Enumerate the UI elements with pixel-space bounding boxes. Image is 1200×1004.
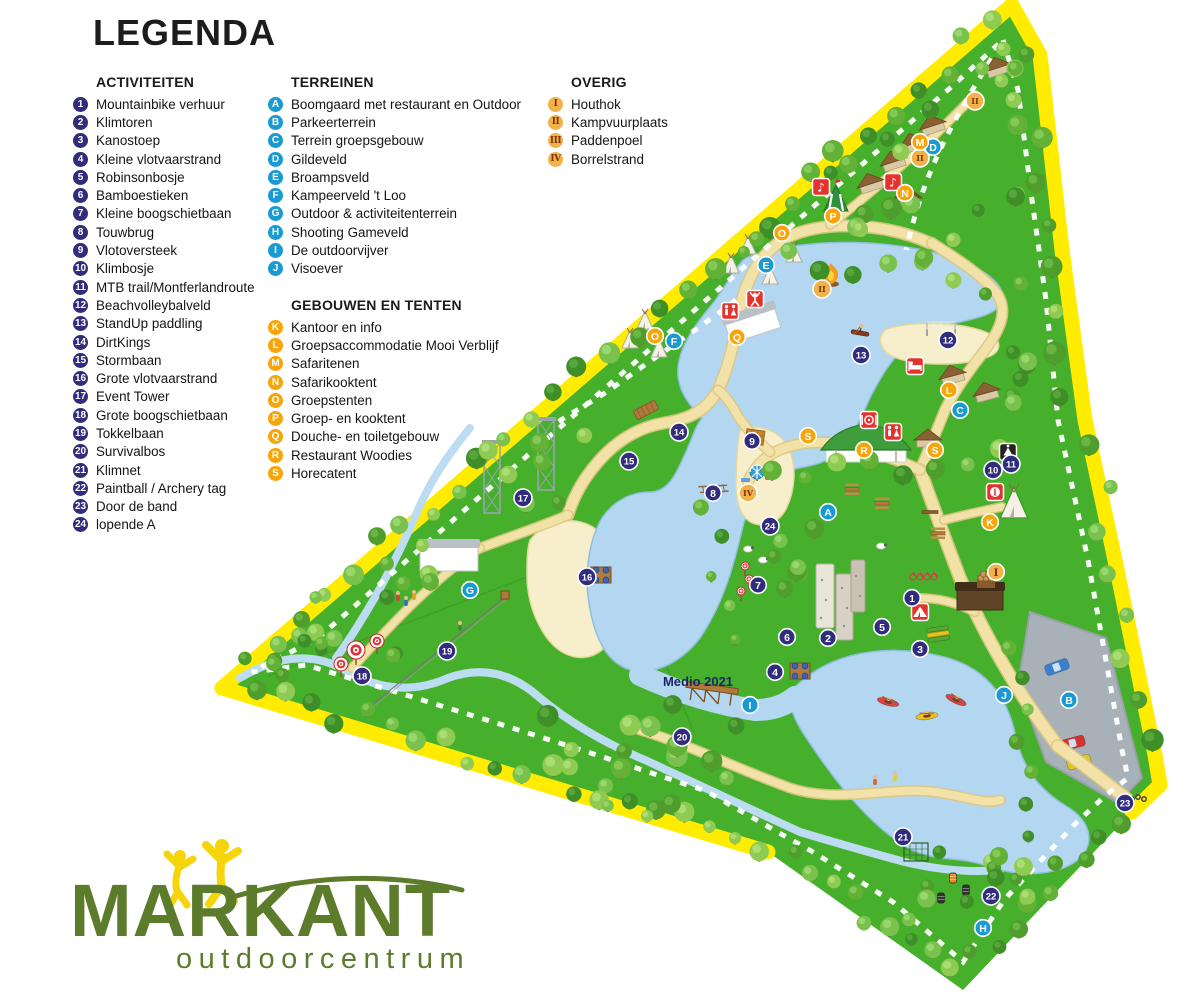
prop-person <box>458 621 462 631</box>
legend-item-overig-II: IIKampvuurplaats <box>548 113 668 131</box>
legend-item-gebouwen-Q: QDouche- en toiletgebouw <box>268 428 499 446</box>
map-marker-3: 3 <box>912 641 929 658</box>
legend-badge: 8 <box>73 225 88 240</box>
legend-badge: IV <box>548 152 563 167</box>
map-marker-P: P <box>825 208 842 225</box>
legend-item-label: Survivalbos <box>96 444 165 459</box>
legend-section-header: OVERIG <box>571 71 668 93</box>
svg-text:13: 13 <box>856 350 867 361</box>
svg-text:9: 9 <box>749 436 755 448</box>
legend-item-activiteiten-13: 13StandUp paddling <box>73 315 255 333</box>
map-marker-7: 7 <box>750 577 767 594</box>
legend-item-label: Kampeerveld 't Loo <box>291 188 406 203</box>
legend-badge: 23 <box>73 499 88 514</box>
legend-item-gebouwen-M: MSafaritenen <box>268 355 499 373</box>
legend-badge: 5 <box>73 170 88 185</box>
legend-section-terreinen: TERREINENABoomgaard met restaurant en Ou… <box>268 71 521 278</box>
map-marker-19: 19 <box>438 642 456 660</box>
tree <box>1006 345 1020 359</box>
legend-item-activiteiten-3: 3Kanostoep <box>73 132 255 150</box>
legend-badge: 20 <box>73 444 88 459</box>
map-marker-I: I <box>988 564 1005 581</box>
map-marker-4: 4 <box>767 664 784 681</box>
legend-badge: 19 <box>73 426 88 441</box>
logo-subtitle: outdoorcentrum <box>176 943 470 975</box>
legend-item-label: Grote vlotvaarstrand <box>96 371 217 386</box>
legend-item-activiteiten-24: 24lopende A <box>73 516 255 534</box>
legend-badge: 4 <box>73 152 88 167</box>
svg-text:O: O <box>651 331 659 343</box>
svg-text:19: 19 <box>442 646 453 657</box>
legend-badge: 14 <box>73 335 88 350</box>
legend-badge: 15 <box>73 353 88 368</box>
legend-badge: L <box>268 338 283 353</box>
tree <box>396 576 410 591</box>
tree <box>416 539 429 552</box>
legend-item-gebouwen-S: SHorecatent <box>268 464 499 482</box>
svg-text:17: 17 <box>518 493 529 504</box>
svg-text:Q: Q <box>733 332 741 344</box>
legend-item-activiteiten-6: 6Bamboestieken <box>73 186 255 204</box>
tree <box>933 845 947 859</box>
sign-bed-icon <box>907 358 924 375</box>
svg-text:22: 22 <box>986 891 997 902</box>
svg-text:L: L <box>946 385 953 397</box>
svg-text:S: S <box>931 445 938 457</box>
legend-item-label: Klimtoren <box>96 115 153 130</box>
tree <box>275 668 289 682</box>
legend-item-label: Vlotoversteek <box>96 243 177 258</box>
legend-item-label: Boomgaard met restaurant en Outdoor <box>291 97 521 112</box>
legend-item-label: Broampsveld <box>291 170 369 185</box>
tree <box>719 771 733 786</box>
map-marker-N: N <box>897 185 914 202</box>
legend-item-label: Stormbaan <box>96 353 162 368</box>
tree <box>1015 671 1029 686</box>
prop-table <box>875 498 889 510</box>
legend-section-header: GEBOUWEN EN TENTEN <box>291 294 499 316</box>
tree <box>386 648 401 663</box>
legend-badge: 17 <box>73 389 88 404</box>
tree <box>1014 276 1028 290</box>
legend-badge: K <box>268 320 283 335</box>
legend-badge: G <box>268 206 283 221</box>
legend-item-label: Paintball / Archery tag <box>96 481 226 496</box>
map-marker-6: 6 <box>779 629 796 646</box>
legend-item-terreinen-B: BParkeerterrein <box>268 113 521 131</box>
sign-wc-icon <box>885 424 902 441</box>
legend-item-label: lopende A <box>96 517 156 532</box>
legend-item-activiteiten-18: 18Grote boogschietbaan <box>73 406 255 424</box>
tree <box>714 529 729 544</box>
tree <box>788 845 802 859</box>
legend-item-label: Tokkelbaan <box>96 426 164 441</box>
svg-text:II: II <box>818 284 826 294</box>
prop-bench <box>922 511 938 514</box>
map-marker-14: 14 <box>670 423 688 441</box>
svg-text:O: O <box>778 228 786 240</box>
map-marker-S: S <box>927 442 944 459</box>
legend-badge: M <box>268 356 283 371</box>
legend-item-label: Klimbosje <box>96 261 154 276</box>
legend-item-label: Groepsaccommodatie Mooi Verblijf <box>291 338 499 353</box>
legend-item-terreinen-G: GOutdoor & activiteitenterrein <box>268 205 521 223</box>
tree <box>773 534 787 548</box>
legend-item-terreinen-I: IDe outdoorvijver <box>268 241 521 259</box>
sign-restaurant-icon <box>861 412 878 429</box>
svg-text:15: 15 <box>624 456 635 467</box>
tree <box>960 895 974 909</box>
legend-item-label: Visoever <box>291 261 343 276</box>
legend-item-terreinen-D: DGildeveld <box>268 150 521 168</box>
tree <box>785 196 800 211</box>
tree <box>386 717 399 730</box>
legend-item-gebouwen-O: OGroepstenten <box>268 391 499 409</box>
legend-item-gebouwen-P: PGroep- en kooktent <box>268 409 499 427</box>
tree <box>827 875 841 889</box>
svg-text:11: 11 <box>1006 459 1017 470</box>
legend-item-activiteiten-4: 4Kleine vlotvaarstrand <box>73 150 255 168</box>
map-marker-15: 15 <box>620 452 638 470</box>
legend-badge: R <box>268 448 283 463</box>
prop-person <box>873 775 877 785</box>
prop-person <box>404 596 408 606</box>
svg-text:5: 5 <box>879 622 885 634</box>
map-marker-H: H <box>975 920 992 937</box>
legend-item-overig-III: IIIPaddenpoel <box>548 132 668 150</box>
legend-section-header: ACTIVITEITEN <box>96 71 255 93</box>
legend-item-label: Kanostoep <box>96 133 160 148</box>
svg-text:J: J <box>1001 690 1007 702</box>
legend-badge: 11 <box>73 280 88 295</box>
legend-item-terreinen-C: CTerrein groepsgebouw <box>268 132 521 150</box>
prop-person <box>412 590 416 600</box>
svg-text:M: M <box>916 137 925 149</box>
prop-table <box>845 484 859 496</box>
tree <box>380 556 394 570</box>
legend-item-activiteiten-19: 19Tokkelbaan <box>73 424 255 442</box>
map-marker-Q: Q <box>729 329 746 346</box>
tree <box>1008 61 1023 76</box>
tree <box>1048 304 1063 319</box>
legend-item-activiteiten-11: 11MTB trail/Montferlandroute <box>73 278 255 296</box>
svg-text:1: 1 <box>909 593 915 605</box>
legend-item-label: Mountainbike verhuur <box>96 97 225 112</box>
legend-badge: J <box>268 261 283 276</box>
legend-item-overig-I: IHouthok <box>548 95 668 113</box>
map-marker-II: II <box>966 92 984 110</box>
legend-badge: P <box>268 411 283 426</box>
legend-item-label: Douche- en toiletgebouw <box>291 429 439 444</box>
sign-music-icon: ♪ <box>813 179 830 196</box>
legend-title: LEGENDA <box>93 12 276 54</box>
tree <box>972 204 985 217</box>
map-marker-S: S <box>800 428 817 445</box>
legend-item-label: DirtKings <box>96 335 150 350</box>
map-marker-17: 17 <box>514 489 532 507</box>
legend-badge: 22 <box>73 481 88 496</box>
legend-item-label: Parkeerterrein <box>291 115 376 130</box>
prop-person <box>396 591 400 601</box>
tree <box>1042 218 1056 232</box>
legend-item-activiteiten-1: 1Mountainbike verhuur <box>73 95 255 113</box>
svg-text:D: D <box>929 142 937 154</box>
tree <box>824 166 838 180</box>
svg-text:7: 7 <box>755 580 761 592</box>
tree <box>799 471 812 484</box>
legend-badge: N <box>268 375 283 390</box>
map-marker-B: B <box>1061 692 1078 709</box>
tree <box>979 287 992 300</box>
svg-text:G: G <box>466 585 474 597</box>
tree <box>1104 480 1118 494</box>
map-marker-A: A <box>820 504 837 521</box>
legend-item-activiteiten-15: 15Stormbaan <box>73 351 255 369</box>
map-marker-C: C <box>952 402 969 419</box>
legend-item-label: Kleine boogschietbaan <box>96 206 232 221</box>
legend-item-terreinen-A: ABoomgaard met restaurant en Outdoor <box>268 95 521 113</box>
legend-item-label: Restaurant Woodies <box>291 448 412 463</box>
svg-text:16: 16 <box>582 572 593 583</box>
legend-badge: 24 <box>73 517 88 532</box>
map-marker-I: I <box>742 697 759 714</box>
legend-item-terreinen-E: EBroampsveld <box>268 168 521 186</box>
legend-badge: Q <box>268 429 283 444</box>
legend-badge: B <box>268 115 283 130</box>
legend-badge: D <box>268 152 283 167</box>
legend-badge: 10 <box>73 261 88 276</box>
legend-section-overig: OVERIGIHouthokIIKampvuurplaatsIIIPaddenp… <box>548 71 668 168</box>
svg-text:♪: ♪ <box>889 176 897 190</box>
legend-item-label: Groepstenten <box>291 393 372 408</box>
svg-text:F: F <box>671 336 678 348</box>
map-marker-16: 16 <box>578 568 596 586</box>
legend-item-label: Klimnet <box>96 463 141 478</box>
tree <box>1019 797 1034 812</box>
map-marker-24: 24 <box>761 517 779 535</box>
legend-badge: 18 <box>73 408 88 423</box>
legend-item-label: Grote boogschietbaan <box>96 408 228 423</box>
svg-text:K: K <box>986 517 994 529</box>
svg-text:II: II <box>971 96 979 106</box>
legend-item-activiteiten-10: 10Klimbosje <box>73 260 255 278</box>
svg-text:4: 4 <box>772 667 778 679</box>
map-marker-2: 2 <box>820 630 837 647</box>
svg-text:2: 2 <box>825 633 831 645</box>
legend-item-activiteiten-16: 16Grote vlotvaarstrand <box>73 369 255 387</box>
legend-item-label: Borrelstrand <box>571 152 644 167</box>
svg-text:P: P <box>829 211 836 223</box>
logo: MARKANT outdoorcentrum <box>68 834 508 999</box>
legend-item-label: Event Tower <box>96 389 169 404</box>
map-marker-R: R <box>856 442 873 459</box>
tree <box>962 944 977 959</box>
map-note: Medio 2021 <box>663 674 733 689</box>
svg-text:E: E <box>762 260 769 272</box>
legend-item-label: Horecatent <box>291 466 357 481</box>
legend-item-label: De outdoorvijver <box>291 243 389 258</box>
legend-item-label: Touwbrug <box>96 225 154 240</box>
map-marker-L: L <box>941 382 958 399</box>
svg-text:B: B <box>1065 695 1073 707</box>
tree <box>994 74 1008 88</box>
svg-text:i: i <box>993 488 997 498</box>
map-marker-F: F <box>666 333 683 350</box>
prop-barrel <box>963 885 970 895</box>
tree <box>298 634 312 648</box>
legend-item-gebouwen-R: RRestaurant Woodies <box>268 446 499 464</box>
legend-section-header: TERREINEN <box>291 71 521 93</box>
legend-item-activiteiten-17: 17Event Tower <box>73 388 255 406</box>
legend-item-label: Shooting Gameveld <box>291 225 409 240</box>
legend-badge: 16 <box>73 371 88 386</box>
legend-item-gebouwen-N: NSafarikooktent <box>268 373 499 391</box>
legend-badge: I <box>548 97 563 112</box>
legend-item-label: Gildeveld <box>291 152 347 167</box>
legend-item-activiteiten-22: 22Paintball / Archery tag <box>73 479 255 497</box>
legend-badge: 6 <box>73 188 88 203</box>
tree <box>946 233 960 248</box>
legend-item-label: Kleine vlotvaarstrand <box>96 152 221 167</box>
map-marker-E: E <box>758 257 775 274</box>
legend-item-label: Kantoor en info <box>291 320 382 335</box>
svg-text:I: I <box>994 567 999 579</box>
map-marker-1: 1 <box>904 590 921 607</box>
legend-badge: 21 <box>73 463 88 478</box>
tree <box>266 656 281 671</box>
map-marker-21: 21 <box>894 828 912 846</box>
tree <box>361 702 375 717</box>
map-marker-5: 5 <box>874 619 891 636</box>
legend-badge: III <box>548 133 563 148</box>
legend-item-label: StandUp paddling <box>96 316 202 331</box>
prop-table <box>931 528 945 540</box>
tree <box>993 940 1007 954</box>
map-marker-13: 13 <box>852 346 870 364</box>
svg-text:II: II <box>916 153 924 163</box>
legend-item-activiteiten-5: 5Robinsonbosje <box>73 168 255 186</box>
tree <box>488 761 502 775</box>
legend-section-gebouwen: GEBOUWEN EN TENTENKKantoor en infoLGroep… <box>268 294 499 483</box>
legend-item-activiteiten-12: 12Beachvolleybalveld <box>73 296 255 314</box>
svg-text:12: 12 <box>943 335 954 346</box>
svg-text:IV: IV <box>743 488 754 498</box>
map-marker-10: 10 <box>984 461 1002 479</box>
legend-item-gebouwen-L: LGroepsaccommodatie Mooi Verblijf <box>268 336 499 354</box>
map-marker-M: M <box>912 134 929 151</box>
legend-badge: 13 <box>73 316 88 331</box>
map-marker-K: K <box>982 514 999 531</box>
legend-item-activiteiten-20: 20Survivalbos <box>73 443 255 461</box>
svg-text:18: 18 <box>357 671 368 682</box>
legend-item-label: Beachvolleybalveld <box>96 298 211 313</box>
svg-text:21: 21 <box>898 832 909 843</box>
legend-item-overig-IV: IVBorrelstrand <box>548 150 668 168</box>
legend-item-activiteiten-14: 14DirtKings <box>73 333 255 351</box>
legend-badge: II <box>548 115 563 130</box>
svg-text:8: 8 <box>710 488 716 500</box>
tree <box>1112 814 1131 834</box>
legend-badge: A <box>268 97 283 112</box>
legend-badge: O <box>268 393 283 408</box>
prop-person <box>893 771 897 781</box>
legend-item-label: Safarikooktent <box>291 375 377 390</box>
legend-badge: 1 <box>73 97 88 112</box>
legend-item-terreinen-F: FKampeerveld 't Loo <box>268 186 521 204</box>
legend-item-label: Door de band <box>96 499 177 514</box>
legend-item-label: Robinsonbosje <box>96 170 185 185</box>
svg-text:A: A <box>824 507 832 519</box>
legend-badge: 9 <box>73 243 88 258</box>
legend-item-label: Terrein groepsgebouw <box>291 133 424 148</box>
map-marker-20: 20 <box>673 728 691 746</box>
svg-text:20: 20 <box>677 732 688 743</box>
legend-item-label: MTB trail/Montferlandroute <box>96 280 255 295</box>
sign-jump-icon <box>747 291 764 308</box>
svg-text:H: H <box>979 923 987 935</box>
map-marker-18: 18 <box>353 667 371 685</box>
map-marker-23: 23 <box>1116 794 1134 812</box>
svg-text:I: I <box>749 700 752 712</box>
svg-text:N: N <box>901 188 909 200</box>
legend-item-activiteiten-21: 21Klimnet <box>73 461 255 479</box>
logo-wordmark: MARKANT <box>70 869 451 952</box>
map-marker-G: G <box>462 582 479 599</box>
tree <box>238 652 251 666</box>
legend-badge: 12 <box>73 298 88 313</box>
legend-item-activiteiten-8: 8Touwbrug <box>73 223 255 241</box>
legend-section-activiteiten: ACTIVITEITEN1Mountainbike verhuur2Klimto… <box>73 71 255 534</box>
legend-badge: C <box>268 133 283 148</box>
svg-text:C: C <box>956 405 964 417</box>
legend-item-label: Kampvuurplaats <box>571 115 668 130</box>
prop-barrel <box>938 893 945 903</box>
tree <box>902 913 916 927</box>
map-marker-O: O <box>774 225 791 242</box>
svg-text:♪: ♪ <box>817 181 825 195</box>
legend-item-label: Paddenpoel <box>571 133 642 148</box>
legend-item-label: Bamboestieken <box>96 188 188 203</box>
legend-badge: E <box>268 170 283 185</box>
map-marker-IV: IV <box>739 484 757 502</box>
map-marker-12: 12 <box>939 331 957 349</box>
legend-item-label: Outdoor & activiteitenterrein <box>291 206 457 221</box>
legend-item-terreinen-J: JVisoever <box>268 260 521 278</box>
legend-badge: 2 <box>73 115 88 130</box>
legend-badge: I <box>268 243 283 258</box>
legend-badge: F <box>268 188 283 203</box>
legend-badge: S <box>268 466 283 481</box>
svg-text:10: 10 <box>988 465 999 476</box>
map-marker-8: 8 <box>705 485 722 502</box>
legend-badge: 7 <box>73 206 88 221</box>
svg-text:14: 14 <box>674 427 685 438</box>
logo-graphic: MARKANT outdoorcentrum <box>68 834 508 994</box>
tree <box>996 42 1010 56</box>
tree <box>975 62 989 76</box>
map-marker-9: 9 <box>744 433 761 450</box>
map-marker-22: 22 <box>982 887 1000 905</box>
prop-barrel <box>950 873 957 883</box>
legend-item-activiteiten-2: 2Klimtoren <box>73 113 255 131</box>
map-marker-II: II <box>813 280 831 298</box>
tree <box>961 458 975 472</box>
legend-item-activiteiten-23: 23Door de band <box>73 498 255 516</box>
legend-item-activiteiten-9: 9Vlotoversteek <box>73 241 255 259</box>
tree <box>452 485 466 499</box>
legend-item-label: Houthok <box>571 97 621 112</box>
map-marker-J: J <box>996 687 1013 704</box>
